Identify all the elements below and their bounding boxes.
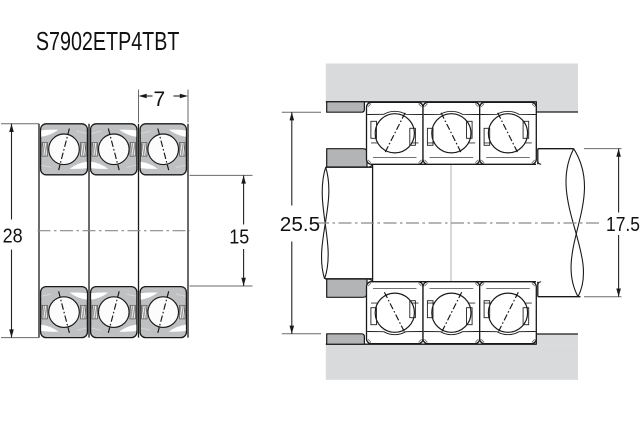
svg-text:S7902ETP4TBT: S7902ETP4TBT: [36, 28, 180, 56]
svg-text:7: 7: [153, 88, 165, 111]
svg-text:25.5: 25.5: [280, 214, 321, 236]
svg-text:17.5: 17.5: [606, 214, 640, 236]
svg-text:15: 15: [229, 226, 249, 248]
svg-text:28: 28: [3, 225, 23, 247]
